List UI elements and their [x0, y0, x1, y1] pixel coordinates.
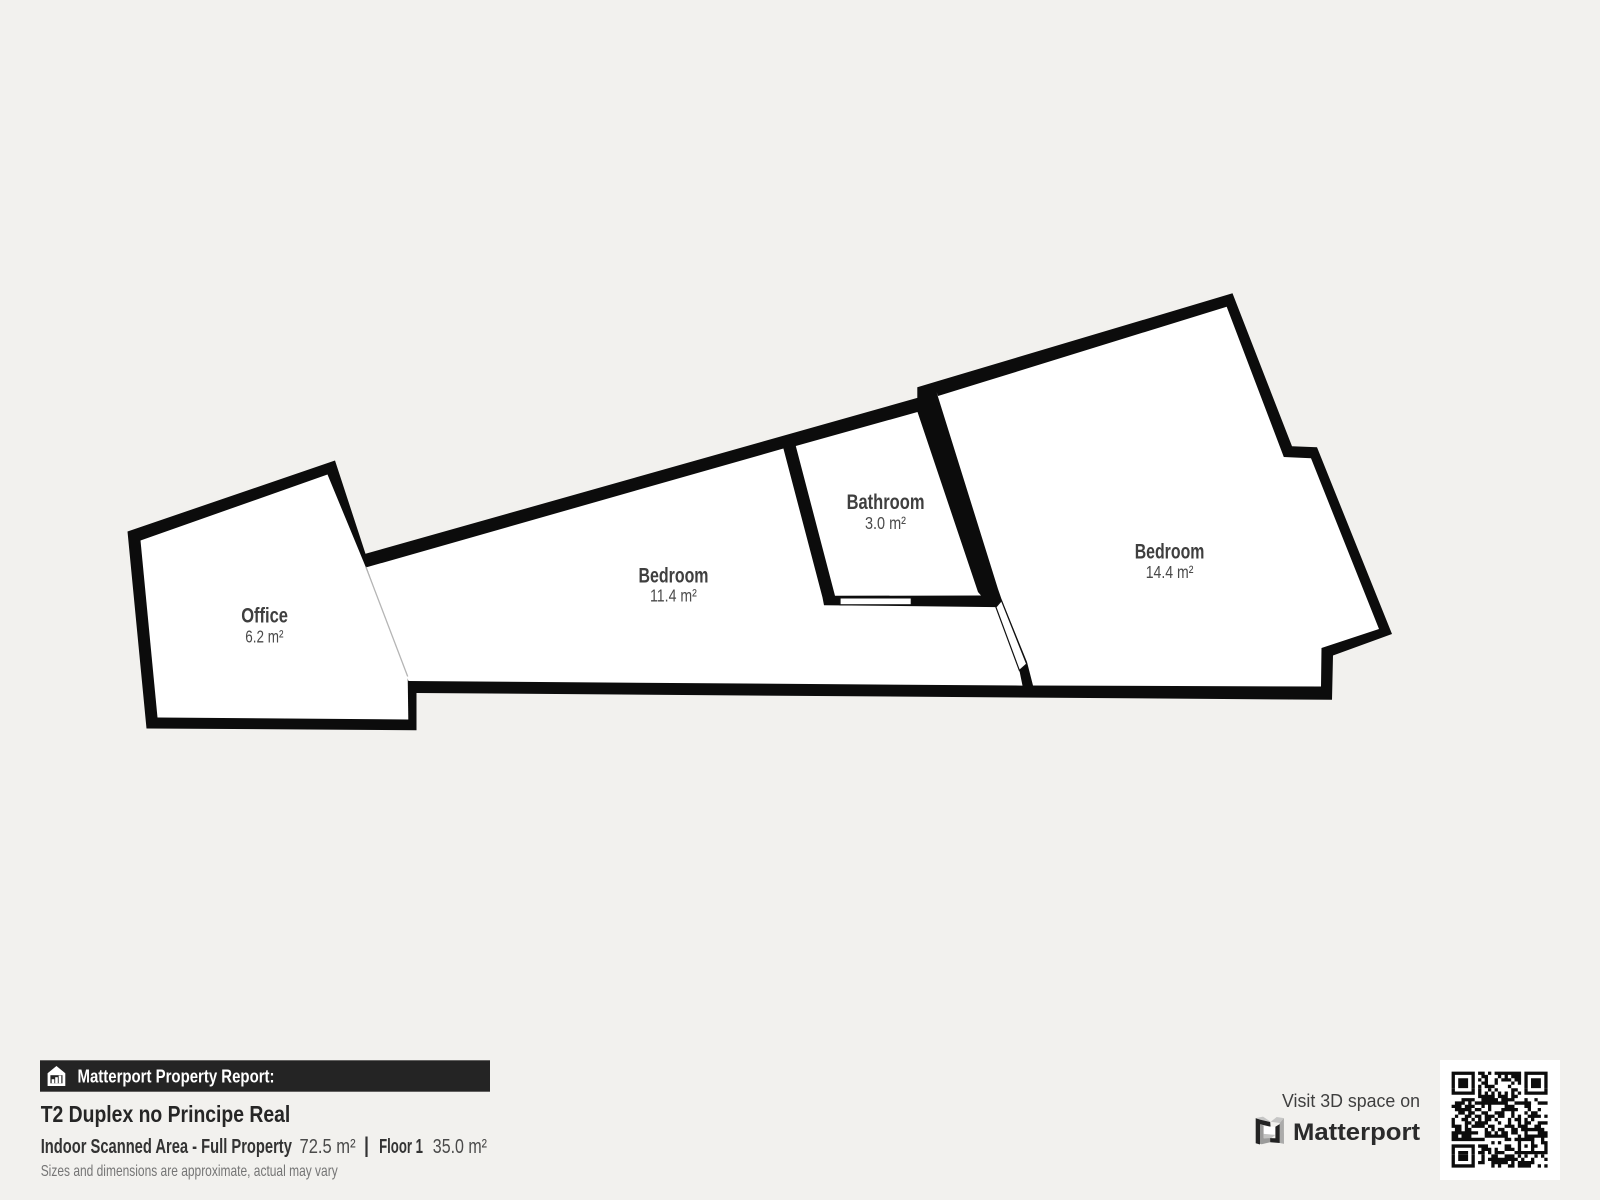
svg-text:Matterport Property Report:: Matterport Property Report: [78, 1066, 275, 1087]
svg-text:Sizes and dimensions are appro: Sizes and dimensions are approximate, ac… [41, 1163, 338, 1180]
svg-text:Bathroom: Bathroom [847, 491, 925, 514]
svg-text:Bedroom: Bedroom [1135, 541, 1205, 564]
svg-text:Visit 3D space on: Visit 3D space on [1282, 1090, 1420, 1111]
svg-text:Bedroom: Bedroom [639, 565, 709, 588]
svg-text:6.2 m²: 6.2 m² [245, 627, 283, 647]
svg-text:Office: Office [241, 605, 288, 628]
svg-text:14.4 m²: 14.4 m² [1146, 562, 1194, 582]
svg-text:Indoor Scanned Area - Full Pro: Indoor Scanned Area - Full Property [41, 1135, 293, 1158]
svg-text:T2 Duplex no Principe Real: T2 Duplex no Principe Real [41, 1101, 291, 1127]
svg-text:72.5 m²: 72.5 m² [300, 1135, 356, 1158]
svg-text:Floor 1: Floor 1 [379, 1135, 423, 1158]
svg-text:3.0 m²: 3.0 m² [865, 513, 906, 533]
svg-text:35.0 m²: 35.0 m² [433, 1135, 487, 1158]
svg-text:Matterport: Matterport [1293, 1119, 1420, 1146]
svg-text:11.4 m²: 11.4 m² [650, 586, 697, 606]
